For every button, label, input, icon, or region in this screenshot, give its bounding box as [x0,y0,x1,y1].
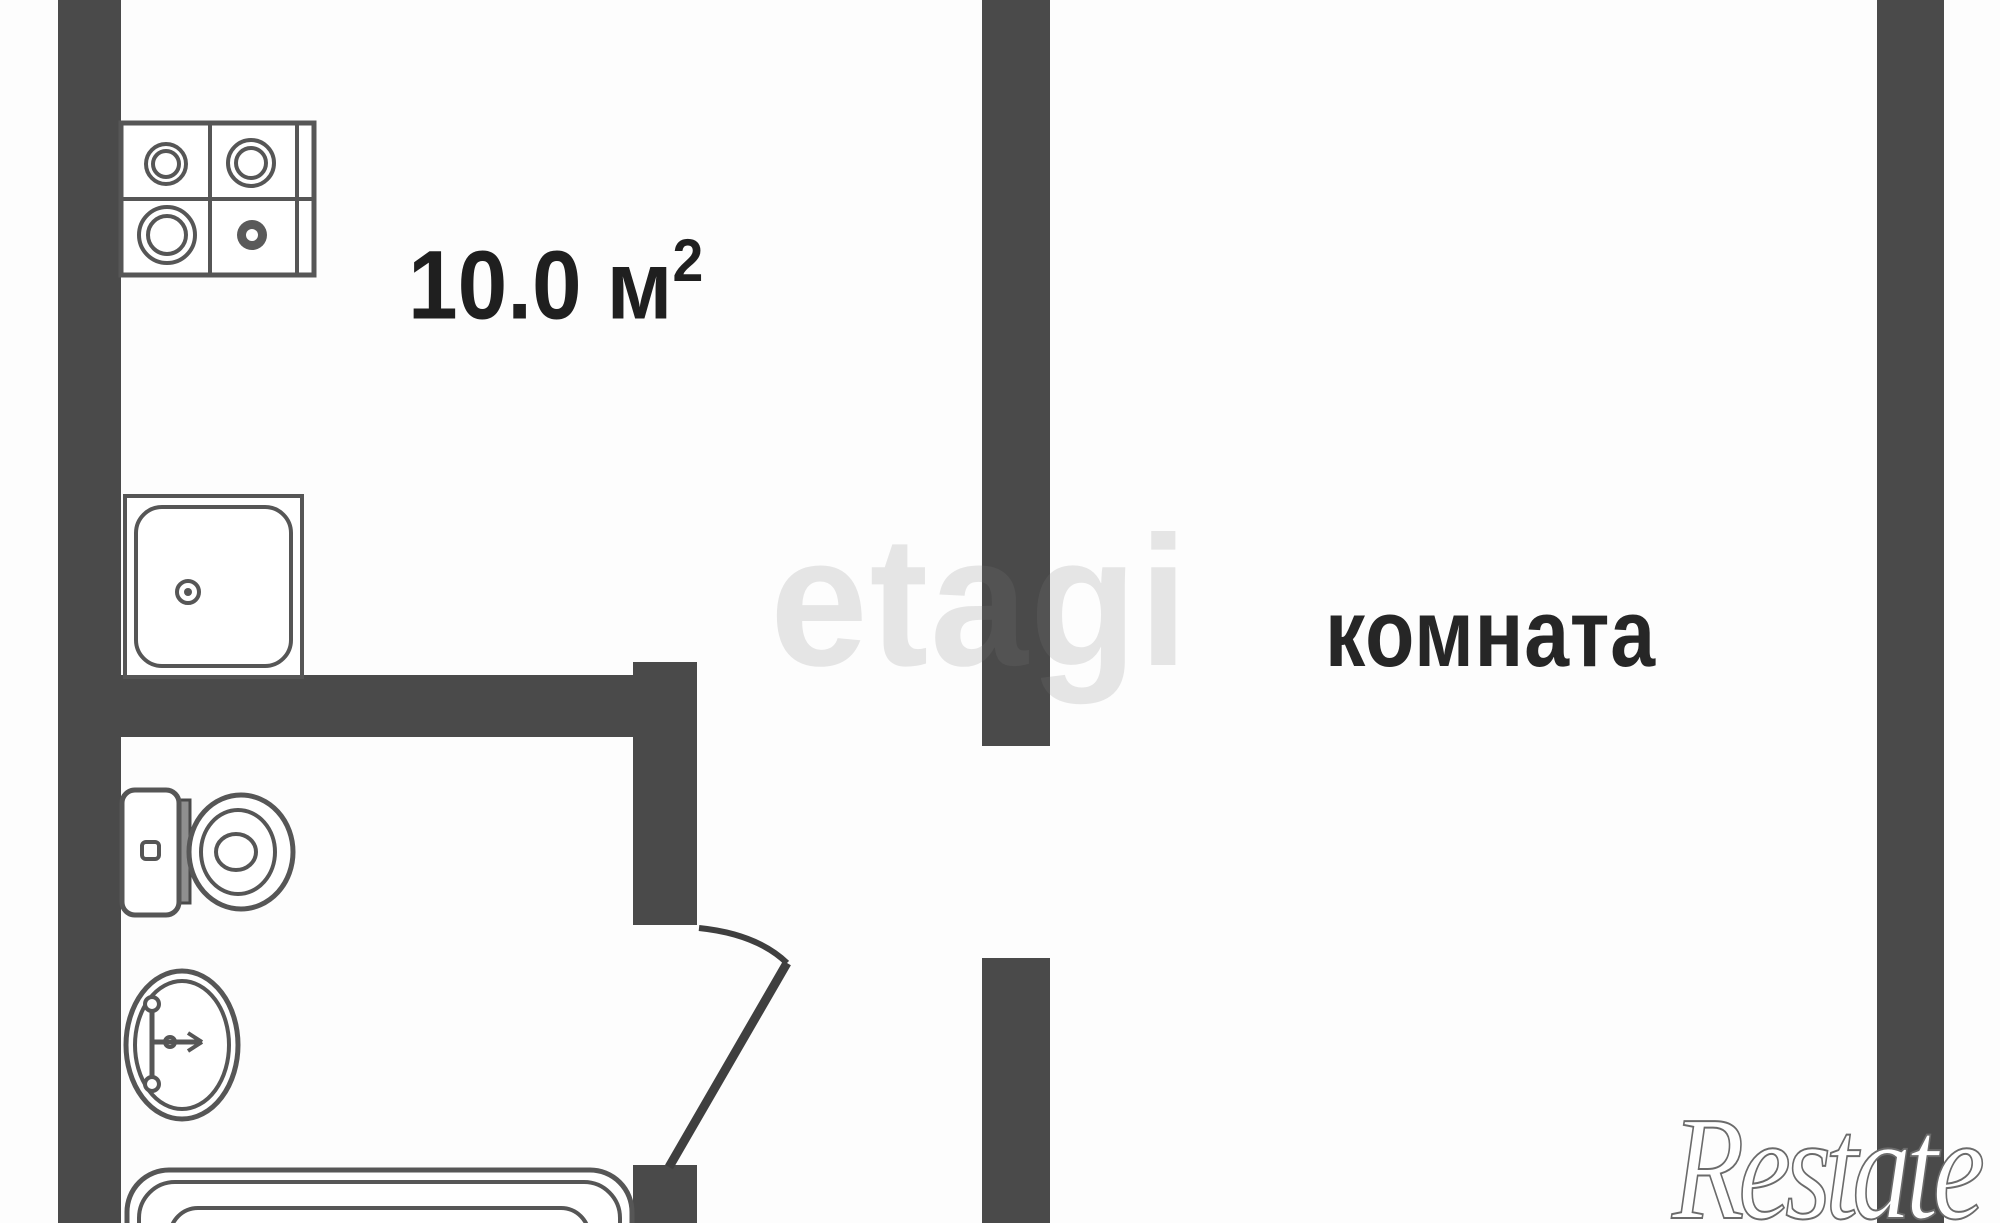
kitchen-area-label: 10.0 м2 [408,235,703,333]
wall-bathroom-jamb-top [633,662,697,925]
wall-left [58,0,121,1223]
wall-center-lower [982,958,1050,1223]
wall-bathroom-divider [121,675,697,737]
door-swing-icon [669,928,787,1167]
kitchen-sink-icon [125,496,302,677]
kitchen-area-value: 10.0 м [408,230,673,339]
room-label: комната [1325,586,1656,682]
etagi-watermark: etagi [770,510,1190,695]
stove-icon [121,123,314,275]
washbasin-icon [126,971,238,1119]
floor-plan: etagi 10.0 м2 комната Restate [0,0,2000,1223]
kitchen-area-superscript: 2 [673,227,704,294]
bathtub-icon [127,1170,632,1223]
wall-bathroom-jamb-bottom [633,1165,697,1223]
wall-right [1877,0,1944,1223]
restate-watermark: Restate [1672,1095,1979,1223]
toilet-icon [122,790,293,915]
